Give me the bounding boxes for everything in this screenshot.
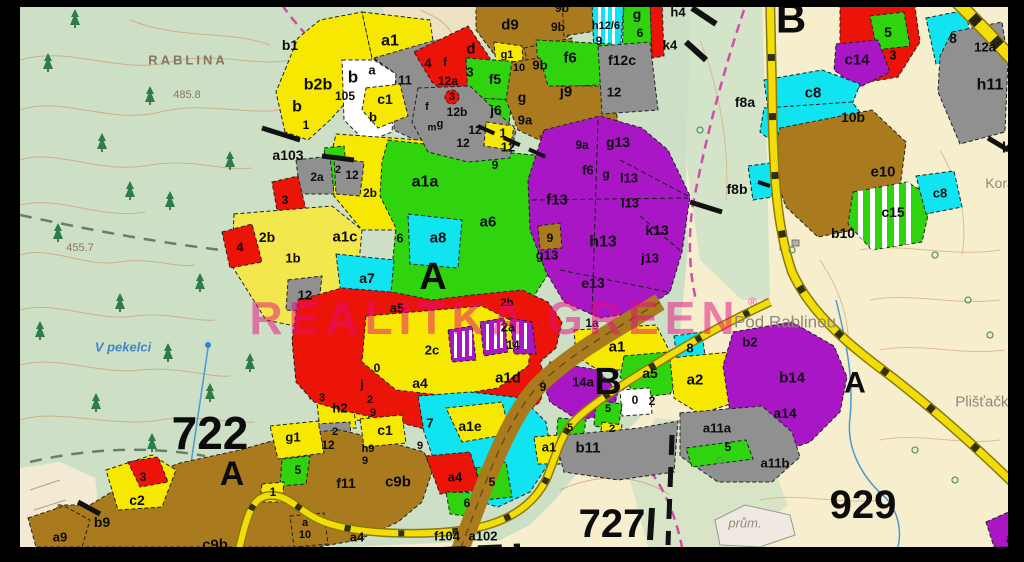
parcel-label: 10b: [841, 109, 865, 125]
parcel-label: j: [359, 379, 363, 391]
parcel-label: 12: [468, 123, 482, 137]
parcel-label: 3: [449, 91, 455, 103]
parcel-label: g13: [536, 248, 558, 263]
parcel-label: g1: [501, 49, 514, 61]
parcel-label: b: [369, 110, 377, 125]
parcel-label: 2b: [259, 229, 275, 245]
parcel-label: a1: [381, 33, 399, 50]
parcel-label: a6: [480, 214, 497, 231]
parcel-label: 9: [540, 380, 547, 394]
place-name-label: Pod Rablinou: [734, 313, 836, 332]
elevation-label: 485.8: [173, 89, 201, 101]
parcel-label: 6: [396, 231, 403, 246]
parcel-label: a9: [53, 530, 67, 545]
parcel-label: f12c: [608, 52, 636, 68]
parcel-label: 4: [424, 56, 432, 71]
parcel-label: b14: [779, 370, 806, 387]
parcel-label: a103: [272, 147, 303, 163]
parcel-label: f13: [546, 192, 568, 209]
parcel-label: k4: [663, 38, 678, 53]
zone-label: 722: [172, 407, 249, 459]
parcel-label: a4: [448, 470, 463, 485]
parcel-label: c14: [844, 52, 870, 69]
parcel-label: 12: [456, 136, 470, 150]
parcel-label: m: [428, 123, 437, 134]
parcel-label: h9: [362, 443, 375, 455]
parcel-label: 2: [332, 426, 338, 438]
parcel-label: b: [348, 68, 358, 87]
parcel-label: 1: [303, 118, 310, 132]
spring-dot: [205, 342, 211, 348]
parcel-label: a102: [469, 529, 498, 544]
parcel-label: l13: [621, 196, 639, 211]
parcel-label: 1b: [285, 251, 300, 266]
parcel-label: 12: [607, 85, 621, 100]
parcel-label: g: [602, 167, 609, 181]
parcel-label: a7: [359, 270, 375, 286]
parcel-label: c1: [377, 91, 393, 107]
parcel-label: 2a: [310, 170, 324, 184]
parcel-label: c9b: [385, 474, 411, 491]
parcel-label: f8a: [735, 94, 755, 110]
parcel-label: c15: [881, 204, 905, 220]
parcel-label: 9: [417, 440, 423, 452]
parcel-label: c8: [933, 186, 947, 201]
parcel-label: b1: [282, 37, 299, 53]
parcel-label: a4: [350, 530, 365, 545]
parcel-label: a14: [773, 405, 797, 421]
parcel-label: 12: [321, 438, 335, 452]
parcel-label: b: [292, 99, 302, 116]
parcel-label: f: [425, 101, 429, 113]
parcel-label: a1c: [332, 229, 357, 246]
parcel-label: 9: [492, 158, 499, 172]
parcel-label: a8: [430, 230, 447, 247]
parcel-label: 0: [632, 393, 639, 407]
parcel-label: 14a: [572, 375, 594, 390]
parcel-label: 2: [335, 164, 341, 176]
parcel-label: h2: [332, 401, 347, 416]
parcel-label: 6: [637, 26, 644, 40]
elevation-label: 455.7: [66, 242, 94, 254]
parcel-label: 9a: [575, 138, 589, 152]
parcel-label: c8: [805, 85, 822, 102]
parcel-label: c1: [377, 422, 393, 438]
parcel-label: 5: [605, 403, 611, 415]
place-name-label: V pekelci: [95, 340, 152, 355]
parcel-label: a: [368, 63, 376, 78]
place-name-label: RABLINA: [148, 53, 228, 68]
parcel-label: 3: [466, 65, 473, 80]
parcel-label: 9b: [551, 20, 565, 34]
parcel-label: 9a: [518, 113, 533, 128]
parcel-label: h13: [589, 234, 617, 251]
parcel-label: 2: [649, 394, 656, 408]
parcel-label: b2b: [304, 77, 333, 94]
parcel-label: h12/6: [592, 20, 620, 32]
parcel-label: g: [437, 118, 444, 130]
parcel-label: l13: [620, 171, 638, 186]
parcel-label: 5: [567, 422, 573, 434]
parcel-label: 12a: [974, 40, 996, 55]
parcel-label: d: [466, 41, 475, 58]
zone-label: 727: [579, 502, 646, 546]
parcel-label: b10: [831, 225, 855, 241]
parcel-label: 8: [949, 30, 957, 46]
parcel-label: 11: [398, 73, 412, 88]
parcel-label: d9: [501, 17, 519, 34]
zone-label: 929: [830, 483, 897, 527]
parcel-label: 0: [374, 361, 381, 375]
parcel-label: 5: [725, 440, 732, 454]
parcel-label: 7: [426, 416, 433, 431]
parcel-label: h11: [977, 77, 1004, 94]
parcel-label: 10: [513, 62, 525, 74]
parcel-label: k13: [645, 222, 669, 238]
parcel-label: b2: [742, 335, 757, 350]
parcel-label: f8b: [727, 181, 748, 197]
parcel-label: 105: [335, 89, 355, 103]
parcel-label: f104: [434, 529, 461, 544]
zone-label: A: [844, 367, 866, 400]
parcel-label: a1: [542, 440, 556, 455]
parcel-label: a4: [412, 375, 428, 391]
parcel-label: 9: [370, 407, 376, 419]
parcel-label: 12: [501, 140, 515, 155]
parcel-label: f6: [582, 163, 594, 178]
parcel-label: g: [518, 89, 527, 105]
parcel-label: 3: [889, 48, 896, 63]
parcel-label: 3: [140, 470, 147, 484]
parcel-label: a5: [642, 365, 658, 381]
zone-label: B: [594, 361, 621, 403]
parcel-label: e10: [870, 164, 895, 181]
parcel-label: g13: [606, 134, 630, 150]
parcel-label: e13: [581, 275, 605, 291]
parcel-label: j6: [489, 102, 502, 118]
parcel-label: f5: [489, 71, 502, 87]
parcel-label: g: [633, 6, 642, 22]
parcel-label: a11a: [703, 421, 732, 436]
parcel-label: g1: [285, 430, 300, 445]
parcel-label: c2: [129, 492, 145, 508]
parcel-label: 5: [489, 475, 496, 489]
parcel-label: j9: [559, 84, 573, 101]
parcel-label: 9: [547, 231, 554, 245]
parcel-label: 2c: [425, 343, 439, 358]
parcel-label: 12: [345, 168, 359, 182]
parcel-label: 10: [299, 529, 311, 541]
parcel-label: a: [302, 517, 309, 529]
parcel-label: 1: [270, 485, 277, 499]
parcel-label: j13: [640, 251, 659, 266]
parcel-label: a1a: [412, 174, 439, 191]
parcel-label: a11b: [761, 456, 790, 471]
parcel-label: 12a: [438, 74, 458, 88]
parcel-label: 4: [236, 240, 244, 255]
zone-label: A: [220, 455, 245, 493]
parcel-label: f6: [563, 50, 576, 67]
parcel-label: 9b: [532, 58, 547, 73]
parcel-label: 12b: [447, 105, 468, 119]
parcel-label: 5: [884, 24, 892, 40]
parcel-label: 3: [282, 193, 289, 207]
parcel-label: f11: [336, 475, 356, 491]
parcel-label: 2b: [363, 186, 377, 200]
parcel-label: 3: [319, 392, 325, 404]
parcel-label: b11: [575, 440, 600, 457]
parcel-label: 6: [464, 496, 471, 510]
parcel-label: 5: [295, 463, 302, 477]
parcel-label: a2: [687, 372, 704, 389]
parcel-label: a1e: [458, 418, 482, 434]
parcel-label: a1d: [495, 370, 521, 387]
parcel-label: b9: [94, 514, 111, 530]
map-screenshot: b1b2bb1b105a11c1ba1d99b9bh12/69g64d3f12a…: [0, 0, 1024, 562]
watermark: REALITKA GREEN: [249, 292, 740, 344]
place-name-label: prům.: [727, 516, 761, 531]
parcel-label: 1: [499, 126, 506, 141]
parcel-label: 9: [596, 34, 603, 48]
watermark-reg: ®: [748, 295, 757, 309]
parcel-label: 2: [609, 423, 615, 435]
parcel-label: 2: [367, 394, 373, 406]
cadastral-map: b1b2bb1b105a11c1ba1d99b9bh12/69g64d3f12a…: [0, 0, 1024, 562]
parcel-label: 9: [362, 455, 368, 467]
